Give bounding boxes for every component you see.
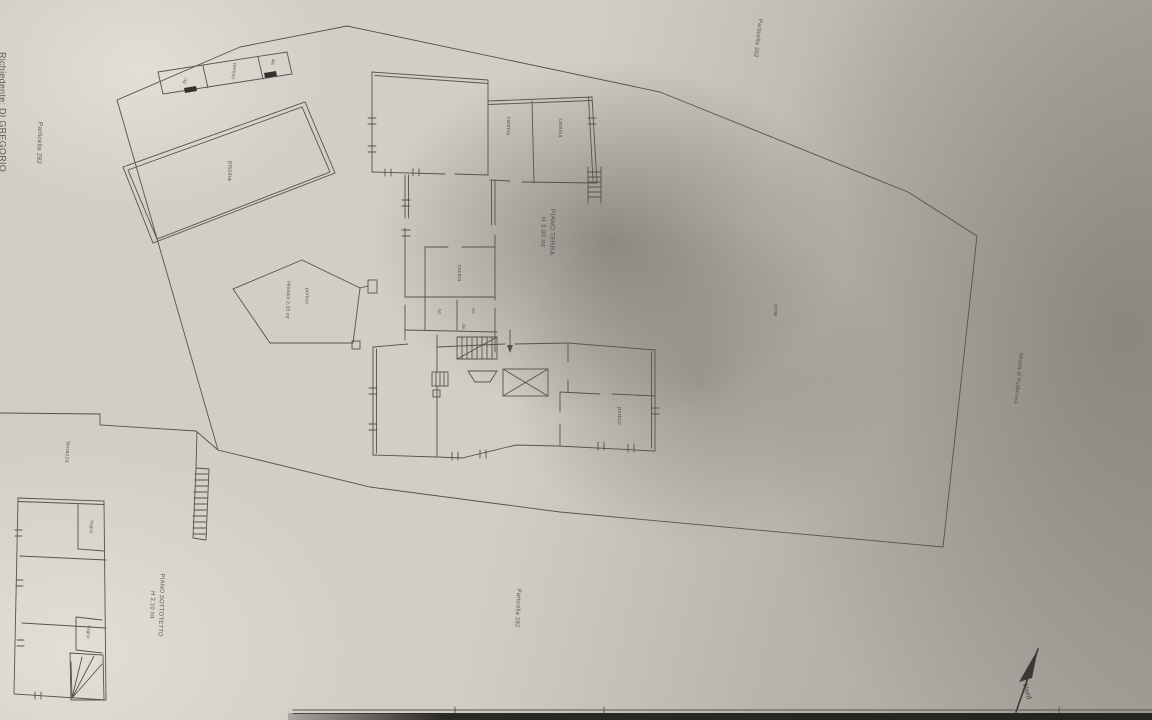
internal-stair [457, 337, 497, 359]
canopy-portico-label: portico [302, 288, 310, 304]
small-stair [432, 372, 448, 397]
piano-sottotetto-label: PIANO SOTTOTETTO H 2.10 mt [146, 573, 166, 637]
cantina-1-label: cantina [503, 116, 512, 135]
dis-label: dis. [460, 323, 467, 331]
cucina-label: cucina [454, 264, 462, 281]
outbuilding-rip-label: rip [180, 77, 188, 84]
wc-small-label: wc [470, 308, 477, 314]
particella-left-label: Particella 282 [34, 122, 45, 164]
corte-label: corte [770, 303, 778, 316]
portico-canopy [233, 260, 377, 349]
property-boundary [117, 26, 977, 547]
outbuilding-wc-label: wc [268, 58, 276, 65]
bagno-1-label: bagno [87, 520, 94, 534]
external-stair-lower [193, 468, 209, 540]
photo-edge-dark-strip [288, 713, 1152, 720]
main-house-upper [368, 72, 601, 203]
portico-lower-label: portico [614, 407, 622, 425]
terrazza-label: terrazza [61, 441, 70, 463]
attic-winder-stair [70, 653, 104, 700]
richiedente-label: Richiedente: DI GREGORIO [0, 52, 9, 172]
rip-small-label: rip. [436, 309, 443, 316]
site-plan-sheet: Richiedente: DI GREGORIO Particella 282 … [0, 0, 1152, 720]
external-stair-upper [588, 167, 601, 203]
plan-drawing [0, 0, 1152, 720]
piano-terra-label: PIANO TERRA H 3.00 mt [537, 209, 557, 255]
canopy-height-label: Hmedia 2.35 mt [283, 281, 292, 319]
main-house-lower [369, 330, 659, 460]
main-house-middle [402, 175, 497, 359]
terrace-outline [0, 413, 197, 468]
entrance-arrow [507, 330, 513, 353]
bagno-2-label: bagno [84, 625, 91, 639]
cantina-2-label: cantina [555, 118, 564, 137]
diagonal-stair [503, 369, 548, 396]
pool-label: piscina [224, 161, 233, 181]
north-arrow-icon [1016, 649, 1038, 712]
